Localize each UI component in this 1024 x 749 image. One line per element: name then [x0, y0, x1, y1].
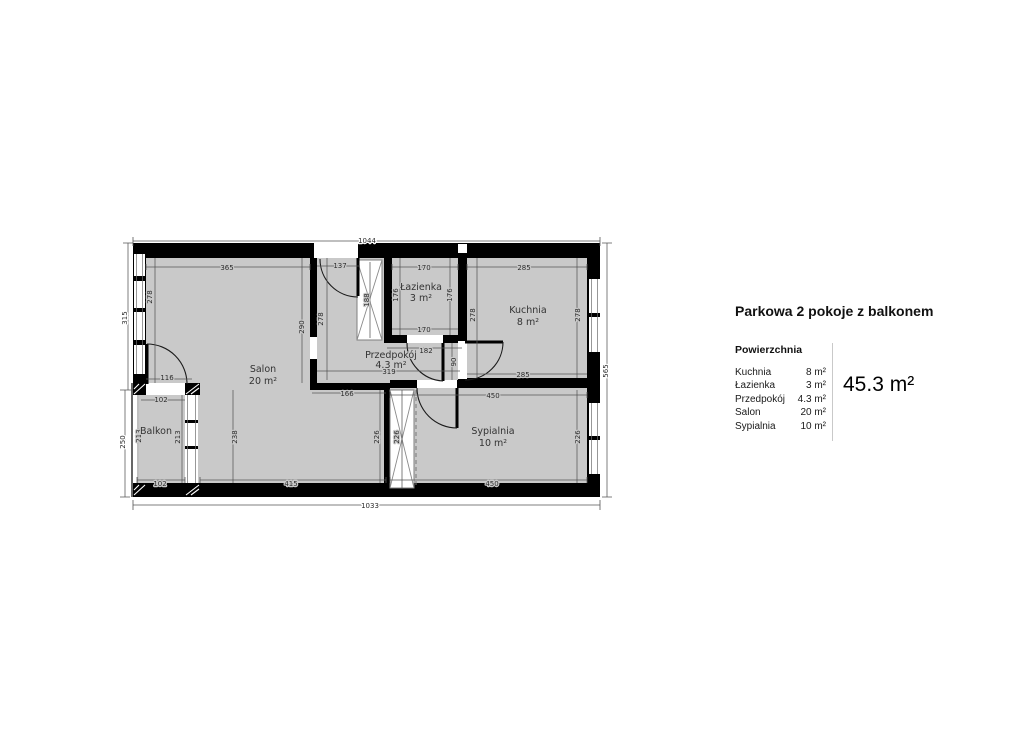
dim-przedpokoj-west: 278 [317, 312, 325, 325]
kuchnia-window [589, 279, 600, 352]
salon-window [134, 254, 145, 374]
dim-salon-north: 365 [220, 264, 233, 272]
kuchnia-area: 8 m² [517, 317, 539, 328]
legend-room-area: 10 m² [800, 420, 826, 433]
legend-room-name: Przedpokój [735, 393, 785, 406]
dim-left-lower: 250 [119, 435, 127, 448]
dim-salon-se-wall: 166 [340, 390, 354, 398]
total-area: 45.3 m² [843, 373, 914, 397]
legend-room-name: Kuchnia [735, 366, 771, 379]
legend-room-name: Sypialnia [735, 420, 776, 433]
legend-room-area: 3 m² [806, 379, 826, 392]
dim-lazienka-north: 170 [417, 264, 430, 272]
dim-balcony-door: 116 [160, 374, 174, 382]
legend-room-table: Kuchnia 8 m² Łazienka 3 m² Przedpokój 4.… [735, 366, 826, 433]
lazienka-label: Łazienka [399, 282, 442, 293]
plan-title: Parkowa 2 pokoje z balkonem [735, 303, 933, 319]
dim-kitchen-door-wall: 90 [450, 358, 458, 367]
legend-divider [832, 343, 833, 441]
dim-sypialnia-north: 450 [486, 392, 499, 400]
dim-lazienka-west: 176 [392, 288, 400, 302]
dim-salon-west: 278 [146, 290, 154, 303]
dim-sypialnia-west: 226 [373, 430, 381, 444]
legend-row: Salon 20 m² [735, 406, 826, 419]
dim-lazienka-east: 176 [446, 288, 454, 302]
przedpokoj-area: 4.3 m² [375, 360, 406, 371]
dim-bottom-total: 1033 [361, 502, 379, 510]
legend-room-area: 20 m² [800, 406, 826, 419]
dim-right-total: 565 [602, 364, 610, 377]
legend-room-name: Salon [735, 406, 761, 419]
dim-kuchnia-north: 285 [517, 264, 530, 272]
lazienka-area: 3 m² [410, 293, 432, 304]
legend-row: Kuchnia 8 m² [735, 366, 826, 379]
legend-room-area: 4.3 m² [798, 393, 826, 406]
dim-entry-wardrobe: 188 [363, 293, 371, 306]
dim-balkon-north: 102 [154, 396, 167, 404]
sypialnia-window [589, 403, 600, 474]
dim-kuchnia-east: 278 [574, 308, 582, 321]
legend-row: Przedpokój 4.3 m² [735, 393, 826, 406]
dim-entry-wall: 137 [333, 262, 346, 270]
balcony-glazing [185, 395, 198, 483]
dim-balkon-east: 213 [174, 430, 182, 443]
legend-room-name: Łazienka [735, 379, 775, 392]
sypialnia-label: Sypialnia [471, 426, 514, 437]
legend-panel: Parkowa 2 pokoje z balkonem Powierzchnia… [735, 303, 1024, 453]
legend-room-area: 8 m² [806, 366, 826, 379]
dim-balkon-south: 102 [153, 480, 166, 488]
salon-label: Salon [250, 364, 276, 375]
dim-salon-east: 290 [298, 320, 306, 333]
sypialnia-area: 10 m² [479, 438, 507, 449]
dim-przedpokoj-east-wall: 182 [419, 347, 432, 355]
dim-kuchnia-south: 285 [516, 371, 529, 379]
dim-sypialnia-wardrobe: 226 [393, 430, 401, 444]
floorplan-page: 1044 1033 315 250 565 365 278 290 137 18… [0, 0, 1024, 749]
dim-kuchnia-west: 278 [469, 308, 477, 321]
dim-sypialnia-east: 226 [574, 430, 582, 444]
dim-top-total: 1044 [358, 237, 376, 245]
dim-salon-south: 415 [284, 480, 297, 488]
dim-sypialnia-south: 450 [485, 480, 498, 488]
kuchnia-label: Kuchnia [509, 305, 547, 316]
legend-row: Sypialnia 10 m² [735, 420, 826, 433]
legend-row: Łazienka 3 m² [735, 379, 826, 392]
balkon-label: Balkon [140, 426, 172, 437]
dim-salon-west-lower: 238 [231, 430, 239, 443]
salon-area: 20 m² [249, 376, 277, 387]
dim-left-upper: 315 [121, 311, 129, 324]
legend-section-title: Powierzchnia [735, 344, 802, 356]
dim-lazienka-south: 170 [417, 326, 430, 334]
